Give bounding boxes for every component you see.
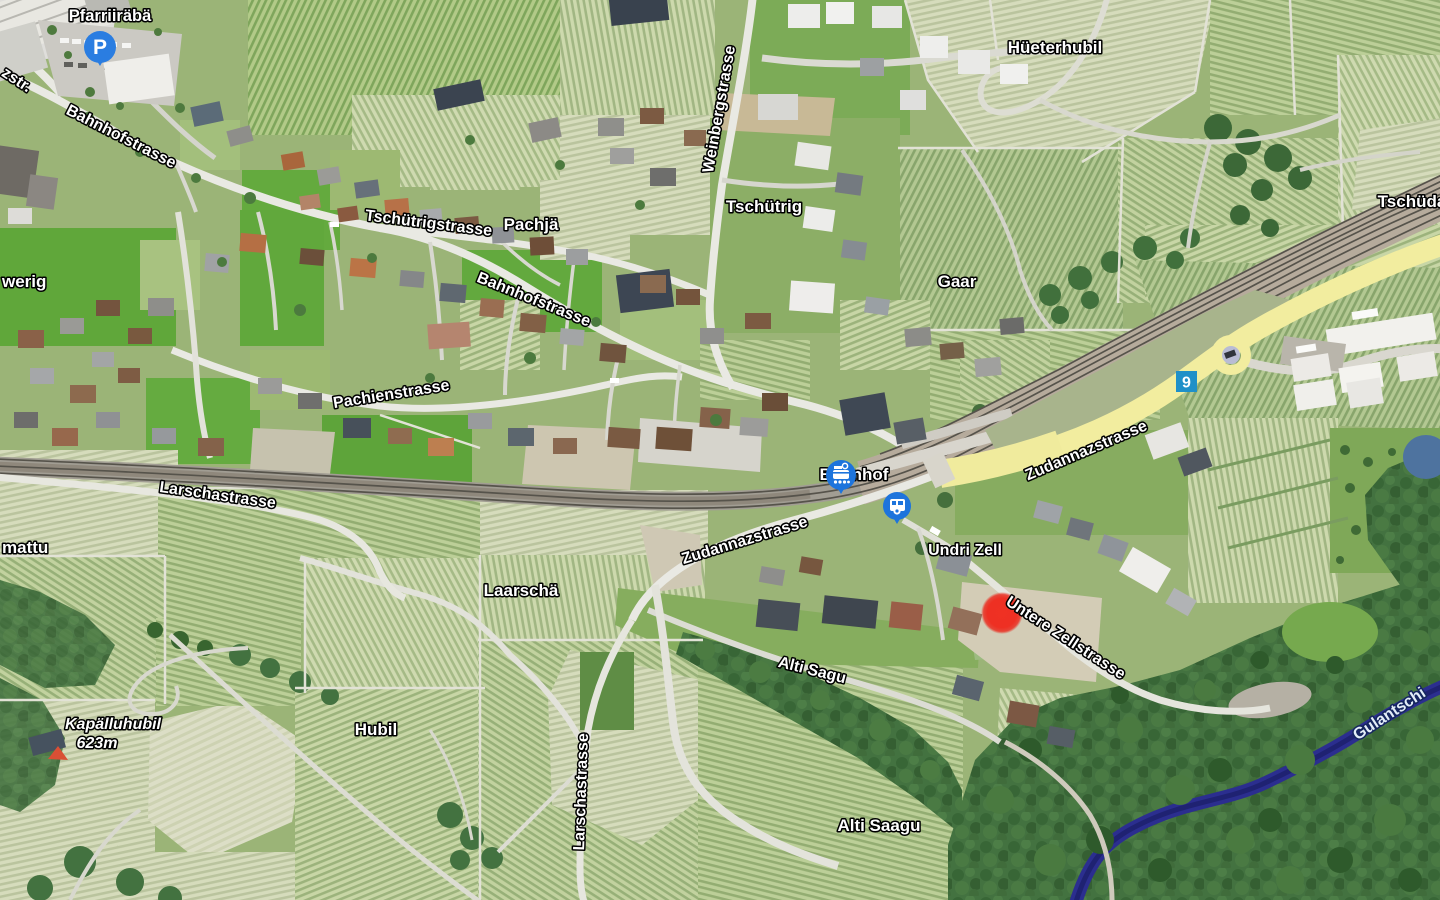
svg-text:Hüeterhubil: Hüeterhubil — [1008, 38, 1102, 57]
svg-text:623m: 623m — [77, 735, 118, 752]
svg-text:Pfarriiräbä: Pfarriiräbä — [69, 7, 152, 25]
svg-text:Alti Saagu: Alti Saagu — [837, 816, 920, 835]
svg-text:Laarschä: Laarschä — [484, 581, 559, 600]
svg-text:Tschüda: Tschüda — [1378, 192, 1440, 211]
svg-text:werig: werig — [1, 272, 46, 291]
svg-text:Undri Zell: Undri Zell — [928, 542, 1002, 559]
svg-text:mattu: mattu — [2, 538, 48, 557]
svg-text:Pachjä: Pachjä — [504, 215, 559, 234]
svg-text:Kapälluhubil: Kapälluhubil — [65, 716, 162, 733]
svg-text:Gaar: Gaar — [938, 272, 977, 291]
svg-text:9: 9 — [1182, 375, 1191, 392]
svg-text:Tschütrig: Tschütrig — [726, 197, 802, 216]
svg-text:P: P — [93, 36, 107, 59]
svg-text:Hubil: Hubil — [355, 720, 398, 739]
